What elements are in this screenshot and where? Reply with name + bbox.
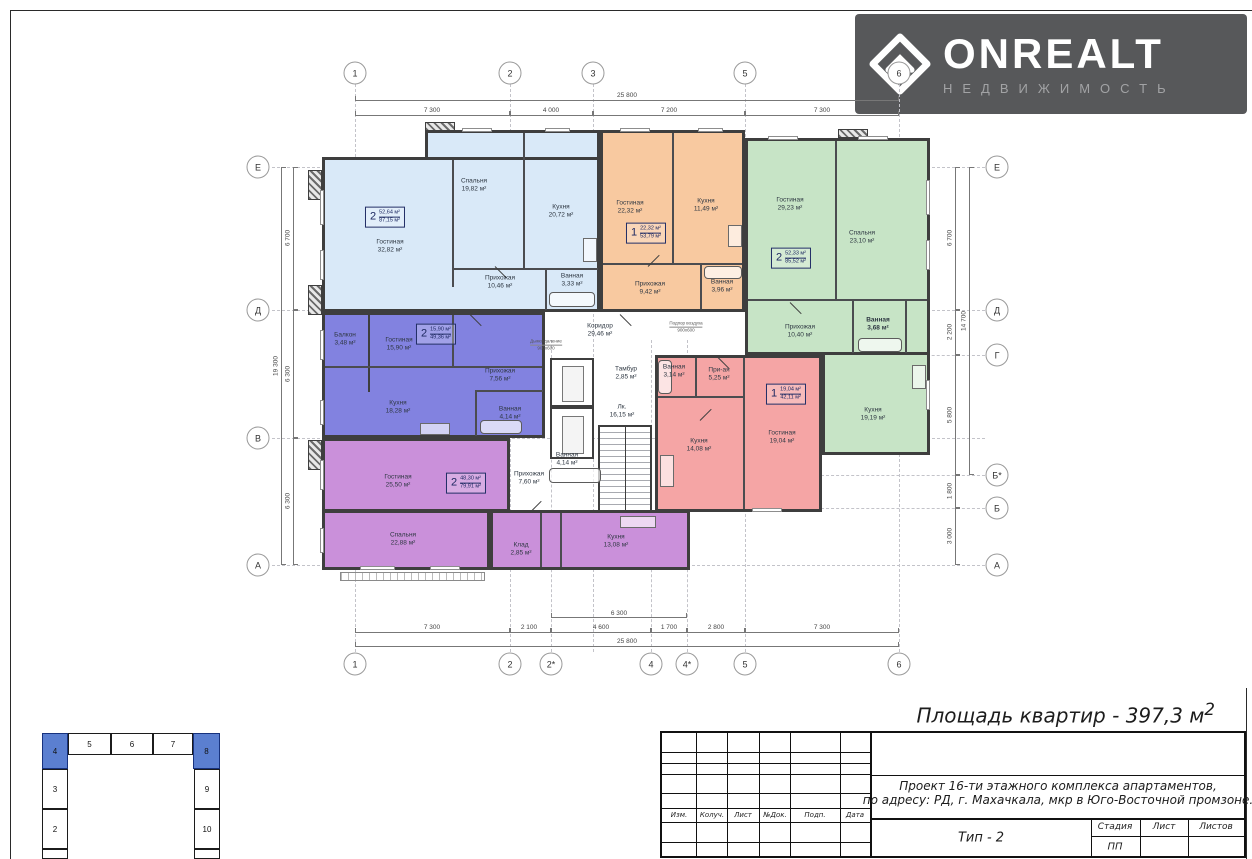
window <box>462 128 492 132</box>
bathtub <box>549 292 595 307</box>
sheets-header: Листов <box>1199 822 1233 832</box>
dim-bottom-s3 <box>551 628 651 633</box>
stamp-col-ndok: №Док. <box>763 811 787 819</box>
frame-left <box>10 10 11 859</box>
window <box>320 460 324 490</box>
room-label-balcony: Балкон3,48 м² <box>334 332 356 349</box>
tb-h3 <box>662 774 870 775</box>
room-label-bath: Ванная4,14 м² <box>556 452 578 469</box>
balcony-rail <box>340 572 485 581</box>
superscript-2: 2 <box>1204 700 1215 719</box>
stage-header: Стадия <box>1098 822 1133 832</box>
dim-top-s1 <box>355 111 510 116</box>
window <box>926 240 930 270</box>
axis-bottom-2: 2 <box>499 653 522 676</box>
note-air-supply: Подпор воздуха900х600 <box>669 321 702 334</box>
wall-vi-balc <box>368 315 370 392</box>
axis-top-2: 2 <box>499 62 522 85</box>
room-label-hall: Прихожая10,40 м² <box>785 324 815 341</box>
titleblock-border-bottom <box>660 856 1246 858</box>
axis-top-3: 3 <box>582 62 605 85</box>
axis-left-V: В <box>247 427 270 450</box>
window <box>320 250 324 280</box>
room-label-kitchen: Кухня13,08 м² <box>604 534 629 551</box>
tb-h2 <box>662 763 870 764</box>
wall-or-3 <box>700 263 702 309</box>
axis-left-A: А <box>247 554 270 577</box>
axis-left-E: Е <box>247 156 270 179</box>
onrealt-logo: ONREALT НЕДВИЖИМОСТЬ <box>855 14 1247 114</box>
room-label-living: Гостиная32,82 м² <box>376 239 403 256</box>
room-label-kitchen: Кухня18,28 м² <box>386 400 411 417</box>
keyplan-cell-6: 6 <box>111 733 153 755</box>
wall-vi-3 <box>475 390 543 392</box>
tb-h5 <box>662 808 870 809</box>
bathtub <box>858 338 902 352</box>
kitchen-counter <box>660 455 674 487</box>
wall-or-1 <box>672 133 674 265</box>
tb-right-v3 <box>1188 818 1189 857</box>
dim-left-total-label: 19 300 <box>273 356 280 376</box>
keyplan-cell-2: 2 <box>42 809 68 849</box>
wall-gr-1 <box>835 141 837 301</box>
project-line1: Проект 16-ти этажного комплекса апартаме… <box>899 779 1217 793</box>
keyplan-cell-4: 4 <box>42 733 68 769</box>
wall-hatch <box>308 285 322 315</box>
window <box>926 380 930 410</box>
tb-h6 <box>662 822 870 823</box>
dim-right-inner-label: 14 700 <box>961 311 968 331</box>
axis-bottom-4: 4 <box>640 653 663 676</box>
window <box>545 128 570 132</box>
room-label-bedroom: Спальня22,88 м² <box>390 532 416 549</box>
window <box>858 136 888 140</box>
tb-h4 <box>662 793 870 794</box>
window <box>320 400 324 425</box>
wall-pk-3 <box>743 358 745 509</box>
dim-right-inner <box>969 167 974 475</box>
elevator-shaft-1 <box>550 358 594 407</box>
dim-right-s3 <box>955 355 960 475</box>
sheet-header: Лист <box>1153 822 1176 832</box>
stamp-col-koluch: Колуч. <box>700 811 724 819</box>
drawing-sheet: ONREALT НЕДВИЖИМОСТЬ 25 800 7 300 4 000 … <box>0 0 1252 859</box>
room-label-stairs: Лк.16,15 м² <box>610 404 635 421</box>
dim-left-s1 <box>293 167 298 310</box>
window <box>768 136 798 140</box>
dim-bottom-s2 <box>510 628 551 633</box>
dim-bottom-s1 <box>355 628 510 633</box>
tb-h1 <box>662 752 870 753</box>
dim-bottom-s4 <box>651 628 687 633</box>
stamp-col-data: Дата <box>846 811 864 819</box>
window <box>926 180 930 215</box>
wall-gr-2 <box>748 299 927 301</box>
room-label-storage: Клад2,85 м² <box>510 542 531 559</box>
logo-subtitle: НЕДВИЖИМОСТЬ <box>943 81 1176 96</box>
keyplan-cell-7: 7 <box>153 733 193 755</box>
stamp-col-izm: Изм. <box>671 811 687 819</box>
axis-right-D: Д <box>986 299 1009 322</box>
unit-badge-orange: 1 22,32 м²53,79 м² <box>626 223 666 244</box>
axis-bottom-2s: 2* <box>540 653 563 676</box>
dim-top-total <box>355 96 899 101</box>
axis-right-G: Г <box>986 344 1009 367</box>
door <box>620 314 632 326</box>
dim-right-s2 <box>955 310 960 355</box>
wall-hatch <box>425 122 455 131</box>
keyplan-cell-5: 5 <box>68 733 111 755</box>
room-label-tambour: Тамбур2,85 м² <box>615 366 637 383</box>
window <box>320 528 324 553</box>
window <box>752 508 782 512</box>
keyplan-cell-8: 8 <box>193 733 220 769</box>
frame-top <box>10 10 1252 11</box>
bathtub <box>549 468 601 483</box>
project-line2: по адресу: РД, г. Махачкала, мкр в Юго-В… <box>863 793 1252 807</box>
staircase <box>598 425 652 512</box>
apartment-green <box>745 138 930 355</box>
axis-left-D: Д <box>247 299 270 322</box>
unit-badge-violet: 2 15,90 м²49,36 м² <box>416 324 456 345</box>
wall-pk-1 <box>695 358 697 398</box>
dim-left-s2 <box>293 310 298 438</box>
stage-value: ПП <box>1107 842 1122 853</box>
dim-right-seg2: 2 200 <box>947 324 954 340</box>
stove <box>583 238 597 262</box>
room-label-kitchen: Кухня14,08 м² <box>687 438 712 455</box>
room-label-hall: Прихожая10,46 м² <box>485 275 515 292</box>
dim-right-seg5: 3 000 <box>947 528 954 544</box>
stove <box>912 365 926 389</box>
window <box>360 566 395 570</box>
dim-bottom-total <box>355 642 899 647</box>
window <box>430 566 460 570</box>
stamp-col-list: Лист <box>734 811 752 819</box>
window <box>320 330 324 360</box>
window <box>620 128 650 132</box>
dim-right-seg3: 5 800 <box>947 407 954 423</box>
kitchen-counter <box>620 516 656 528</box>
axis-right-E: Е <box>986 156 1009 179</box>
room-label-bedroom: Спальня23,10 м² <box>849 230 875 247</box>
axis-right-A: А <box>986 554 1009 577</box>
axis-top-5: 5 <box>734 62 757 85</box>
wall-gr-4 <box>905 299 907 353</box>
keyplan-cell-3: 3 <box>42 769 68 809</box>
wall-pk-2 <box>658 396 745 398</box>
axis-top-6: 6 <box>888 62 911 85</box>
tb-right-v2 <box>1140 818 1141 857</box>
room-label-living: Гостиная29,23 м² <box>776 197 803 214</box>
titleblock-border-left <box>660 731 662 858</box>
dim-top-s2 <box>510 111 593 116</box>
elevator-cab <box>562 366 584 402</box>
axis-right-Bs: Б* <box>986 464 1009 487</box>
tb-right-v1 <box>1091 818 1092 857</box>
room-label-bath: Ванная3,68 м² <box>866 317 890 334</box>
wall-vi-4 <box>475 390 477 436</box>
total-area-text: Площадь квартир - 397,3 м2 <box>916 700 1215 728</box>
tb-right-h1 <box>872 775 1244 776</box>
tb-h7 <box>662 842 870 843</box>
room-label-bedroom: Спальня19,82 м² <box>461 178 487 195</box>
room-label-kitchen: Кухня11,49 м² <box>694 198 718 215</box>
dim-right-s1 <box>955 167 960 310</box>
dim-right-seg1: 6 700 <box>947 230 954 246</box>
dim-right-s5 <box>955 508 960 565</box>
wall-lb-3 <box>452 268 598 270</box>
bathtub <box>704 266 742 279</box>
room-label-living: Гостиная25,50 м² <box>384 474 411 491</box>
keyplan-cell-partial-left <box>42 849 68 859</box>
axis-bottom-1: 1 <box>344 653 367 676</box>
room-label-living: Гостиная22,32 м² <box>616 200 643 217</box>
keyplan-cell-10: 10 <box>194 809 220 849</box>
dim-bottom-s5 <box>687 628 745 633</box>
note-smoke-exhaust: Дымоудаление900х600 <box>530 339 562 352</box>
stove <box>728 225 742 247</box>
titleblock-border-top <box>660 731 1246 733</box>
window <box>320 190 324 225</box>
wall-gr-3 <box>852 299 854 353</box>
wall-lb-4 <box>545 268 547 310</box>
room-label-kitchen: Кухня20,72 м² <box>549 204 574 221</box>
apartment-purple-strip <box>490 510 690 570</box>
unit-badge-green: 2 52,33 м²85,52 м² <box>771 248 811 269</box>
dim-bottom-s6 <box>745 628 899 633</box>
tb-right-h3 <box>1091 836 1244 837</box>
room-label-living: Гостиная15,90 м² <box>385 337 412 354</box>
dim-right-seg4: 1 800 <box>947 483 954 499</box>
room-label-bath: Ванная4,14 м² <box>499 406 521 423</box>
axis-bottom-5: 5 <box>734 653 757 676</box>
elevator-cab <box>562 416 584 454</box>
unit-badge-purple: 2 48,30 м²79,91 м² <box>446 473 486 494</box>
room-label-hall: Прихожая9,42 м² <box>635 281 665 298</box>
room-label-kitchen: Кухня19,19 м² <box>861 407 886 424</box>
dim-top-s4 <box>745 111 899 116</box>
window <box>698 128 723 132</box>
wall-pu-1 <box>540 513 542 567</box>
stamp-col-podp: Подп. <box>804 811 825 819</box>
unit-badge-pink: 1 19,04 м²42,11 м² <box>766 384 806 405</box>
wall-or-2 <box>603 263 742 265</box>
room-label-corridor: Коридор29,46 м² <box>587 323 613 340</box>
room-label-hall: При-ая5,25 м² <box>708 367 729 384</box>
wall-lb-2 <box>523 133 525 270</box>
dim-left-s3 <box>293 438 298 565</box>
room-label-bath: Ванная3,96 м² <box>711 279 733 296</box>
room-label-bath: Ванная3,33 м² <box>561 273 583 290</box>
room-label-hall: Прихожая7,60 м² <box>514 471 544 488</box>
type-label: Тип - 2 <box>958 831 1004 846</box>
logo-title: ONREALT <box>943 33 1176 75</box>
kitchen-counter <box>420 423 450 435</box>
dim-left-total <box>281 167 286 565</box>
room-label-bath: Ванная3,14 м² <box>663 364 685 381</box>
dim-top-s3 <box>593 111 745 116</box>
keyplan-cell-partial-right <box>194 849 220 859</box>
dim-bottom-midline <box>551 613 687 618</box>
axis-top-1: 1 <box>344 62 367 85</box>
dim-right-s4 <box>955 475 960 508</box>
wall-pu-2 <box>560 513 562 567</box>
unit-badge-lightblue: 2 52,64 м²87,15 м² <box>365 207 405 228</box>
frame-right <box>1246 688 1247 859</box>
room-label-hall: Прихожая7,56 м² <box>485 368 515 385</box>
room-label-living: Гостиная19,04 м² <box>768 430 795 447</box>
axis-bottom-6: 6 <box>888 653 911 676</box>
axis-bottom-4s: 4* <box>676 653 699 676</box>
axis-right-B: Б <box>986 497 1009 520</box>
keyplan-cell-9: 9 <box>194 769 220 809</box>
